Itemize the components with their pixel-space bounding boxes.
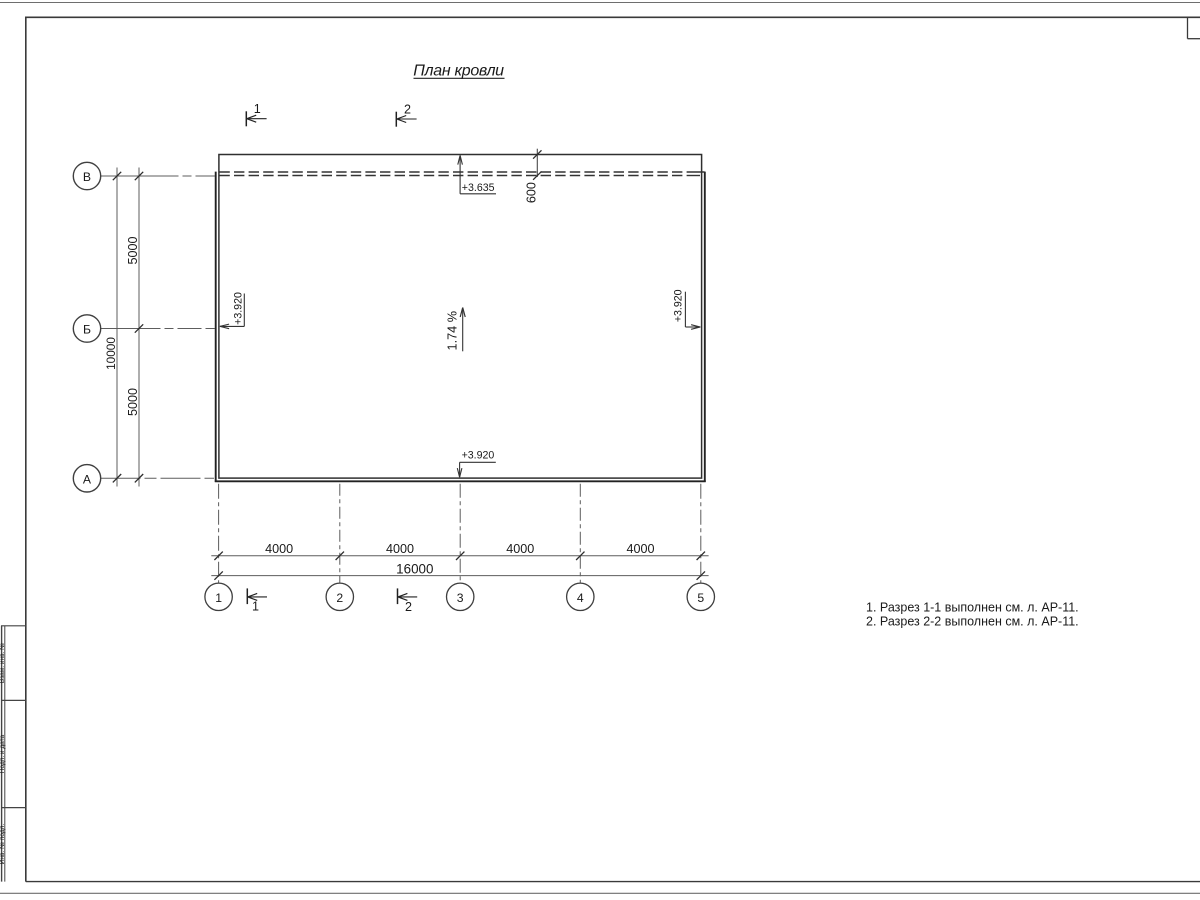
svg-text:+3.920: +3.920 xyxy=(233,292,245,325)
svg-text:4000: 4000 xyxy=(265,542,293,556)
svg-text:Инв. № подл.: Инв. № подл. xyxy=(0,824,6,865)
svg-text:4000: 4000 xyxy=(506,542,534,556)
svg-text:+3.635: +3.635 xyxy=(462,182,495,194)
svg-text:10000: 10000 xyxy=(104,337,118,370)
svg-text:600: 600 xyxy=(525,182,539,203)
svg-text:1.74 %: 1.74 % xyxy=(446,311,460,351)
svg-text:16000: 16000 xyxy=(396,561,433,576)
svg-text:1: 1 xyxy=(252,599,259,613)
svg-text:Б: Б xyxy=(83,323,91,337)
svg-text:+3.920: +3.920 xyxy=(673,289,685,322)
svg-text:4000: 4000 xyxy=(386,542,414,556)
svg-text:2: 2 xyxy=(405,600,412,614)
svg-text:5: 5 xyxy=(697,591,704,605)
svg-text:+3.920: +3.920 xyxy=(462,450,495,462)
svg-text:1: 1 xyxy=(254,102,261,116)
svg-text:План кровли: План кровли xyxy=(413,63,504,80)
svg-text:2: 2 xyxy=(336,591,343,605)
svg-text:3: 3 xyxy=(457,591,464,605)
svg-text:5000: 5000 xyxy=(126,388,140,416)
svg-text:2. Разрез 2-2 выполнен см. л.: 2. Разрез 2-2 выполнен см. л. АР-11. xyxy=(866,614,1079,628)
svg-text:Подп. и дата: Подп. и дата xyxy=(0,734,6,773)
svg-text:Взам. инв. №: Взам. инв. № xyxy=(0,643,6,683)
svg-text:1. Разрез 1-1 выполнен см. л.: 1. Разрез 1-1 выполнен см. л. АР-11. xyxy=(866,601,1079,615)
svg-text:4000: 4000 xyxy=(626,542,654,556)
svg-text:4: 4 xyxy=(577,591,584,605)
svg-text:А: А xyxy=(83,472,92,486)
svg-text:В: В xyxy=(83,170,91,184)
svg-text:5000: 5000 xyxy=(126,236,140,264)
svg-text:2: 2 xyxy=(404,103,411,117)
svg-text:1: 1 xyxy=(215,591,222,605)
